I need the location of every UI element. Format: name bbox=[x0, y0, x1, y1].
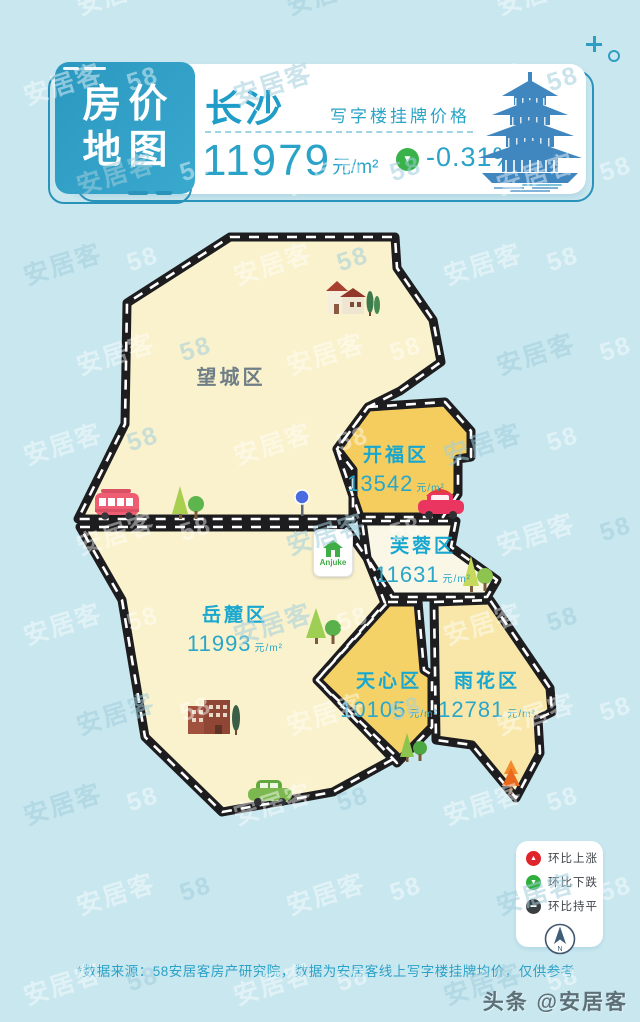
card-dash-decoration bbox=[156, 191, 172, 195]
district-name: 望城区 bbox=[197, 361, 266, 390]
legend-label: 环比上涨 bbox=[548, 850, 598, 866]
dashed-divider bbox=[205, 131, 473, 133]
compass-icon: N bbox=[543, 922, 577, 956]
card-dash-decoration bbox=[128, 191, 148, 195]
district-name: 雨花区 bbox=[438, 666, 536, 693]
district-name: 芙蓉区 bbox=[375, 531, 471, 558]
legend-label: 环比下跌 bbox=[548, 874, 598, 890]
district-price: 13542元/m² bbox=[347, 471, 445, 497]
subtitle: 写字楼挂牌价格 bbox=[330, 102, 470, 127]
poster: 房价 地图 长沙 写字楼挂牌价格 11979 元/m² ▼ -0.31% bbox=[0, 0, 640, 1022]
district-label-yuelu: 岳麓区 11993元/m² bbox=[187, 600, 283, 657]
district-name: 天心区 bbox=[340, 666, 438, 693]
district-price: 11631元/m² bbox=[375, 562, 471, 588]
district-label-tianxin: 天心区 10105元/m² bbox=[340, 666, 438, 723]
plus-decoration-icon bbox=[586, 36, 602, 52]
legend-card: ▲ 环比上涨 ▼ 环比下跌 ▬ 环比持平 N bbox=[516, 841, 603, 947]
compass: N bbox=[516, 922, 603, 956]
district-price: 12781元/m² bbox=[438, 697, 536, 723]
trend-down-icon: ▼ bbox=[396, 148, 419, 171]
price-unit: 元/m² bbox=[332, 152, 378, 179]
district-price: 11993元/m² bbox=[187, 631, 283, 657]
badge-line1: 房价 bbox=[75, 82, 174, 128]
average-price: 11979 bbox=[202, 136, 331, 186]
title-badge: 房价 地图 bbox=[55, 62, 195, 194]
city-title: 长沙 bbox=[205, 78, 285, 132]
toutiao-watermark: 头条 @安居客 bbox=[483, 986, 628, 1016]
anjuke-logo-text: Anjuke bbox=[320, 558, 347, 567]
legend-item-up: ▲ 环比上涨 bbox=[526, 850, 603, 866]
badge-line2: 地图 bbox=[75, 128, 174, 174]
district-label-wangcheng: 望城区 bbox=[197, 361, 266, 390]
district-price: 10105元/m² bbox=[340, 697, 438, 723]
pagoda-illustration bbox=[474, 72, 586, 192]
district-name: 岳麓区 bbox=[187, 600, 283, 627]
flat-bar-icon: ▬ bbox=[526, 899, 541, 914]
anjuke-logo: Anjuke bbox=[313, 529, 353, 577]
district-label-yuhua: 雨花区 12781元/m² bbox=[438, 666, 536, 723]
up-arrow-icon: ▲ bbox=[526, 851, 541, 866]
legend-label: 环比持平 bbox=[548, 898, 598, 914]
badge-dash-decoration bbox=[84, 67, 106, 70]
down-arrow-icon: ▼ bbox=[526, 875, 541, 890]
data-source-note: *数据来源：58安居客房产研究院，数据为安居客线上写字楼挂牌均价，仅供参考 bbox=[77, 960, 575, 980]
district-label-kaifu: 开福区 13542元/m² bbox=[347, 440, 445, 497]
down-arrow-glyph: ▼ bbox=[403, 154, 413, 165]
badge-dash-decoration bbox=[63, 67, 79, 70]
district-name: 开福区 bbox=[347, 440, 445, 467]
dot-decoration-icon bbox=[608, 50, 620, 62]
district-label-furong: 芙蓉区 11631元/m² bbox=[375, 531, 471, 588]
legend-item-flat: ▬ 环比持平 bbox=[526, 898, 603, 914]
compass-north-label: N bbox=[557, 946, 562, 953]
legend-item-down: ▼ 环比下跌 bbox=[526, 874, 603, 890]
anjuke-house-icon bbox=[323, 540, 343, 557]
